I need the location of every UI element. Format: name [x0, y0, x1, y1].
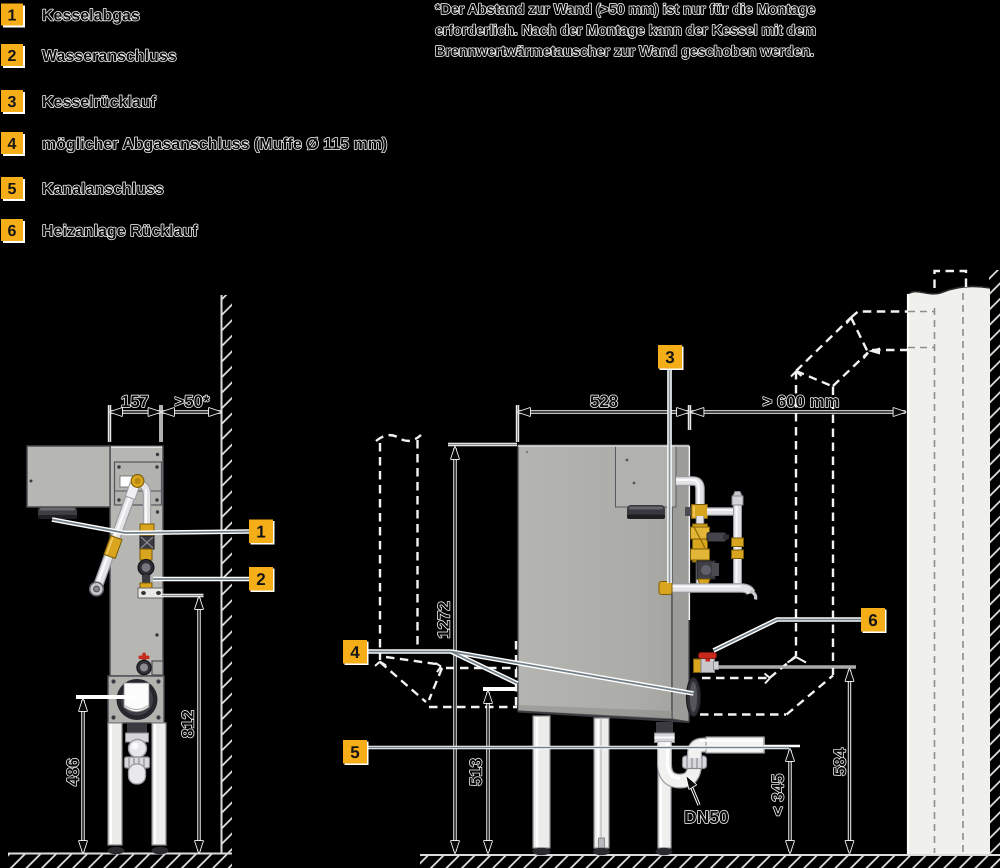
svg-text:1: 1	[256, 523, 265, 542]
svg-text:2: 2	[8, 48, 17, 65]
svg-text:513: 513	[467, 758, 486, 786]
svg-text:4: 4	[350, 643, 360, 662]
svg-text:< 345: < 345	[769, 774, 788, 816]
svg-text:6: 6	[8, 223, 17, 240]
svg-text:Kesselrücklauf: Kesselrücklauf	[42, 94, 157, 111]
svg-text:>50*: >50*	[175, 392, 210, 411]
svg-text:möglicher Abgasanschluss (Muff: möglicher Abgasanschluss (Muffe Ø 115 mm…	[42, 136, 387, 153]
svg-text:1: 1	[8, 8, 17, 25]
svg-text:157: 157	[121, 392, 149, 411]
svg-text:812: 812	[179, 710, 198, 738]
svg-text:5: 5	[8, 181, 17, 198]
svg-text:Wasseranschluss: Wasseranschluss	[42, 48, 177, 65]
svg-text:*Der Abstand zur Wand (>50 mm): *Der Abstand zur Wand (>50 mm) ist nur f…	[435, 2, 815, 18]
svg-text:erforderlich. Nach der Montage: erforderlich. Nach der Montage kann der …	[435, 23, 816, 39]
svg-text:Brennwertwärmetauscher zur Wan: Brennwertwärmetauscher zur Wand geschobe…	[435, 44, 814, 60]
svg-text:2: 2	[256, 570, 265, 589]
svg-text:584: 584	[831, 747, 850, 776]
svg-text:5: 5	[350, 743, 359, 762]
svg-text:4: 4	[8, 136, 17, 153]
svg-text:6: 6	[868, 611, 877, 630]
svg-text:3: 3	[665, 348, 674, 367]
svg-text:486: 486	[64, 758, 83, 786]
svg-text:528: 528	[590, 392, 618, 411]
svg-text:Heizanlage Rücklauf: Heizanlage Rücklauf	[42, 223, 198, 240]
svg-text:Kanalanschluss: Kanalanschluss	[42, 181, 164, 198]
svg-text:> 600 mm: > 600 mm	[763, 392, 840, 411]
svg-text:3: 3	[8, 94, 17, 111]
svg-text:Kesselabgas: Kesselabgas	[42, 8, 140, 25]
svg-text:1272: 1272	[435, 601, 454, 638]
svg-text:DN50: DN50	[684, 807, 729, 827]
